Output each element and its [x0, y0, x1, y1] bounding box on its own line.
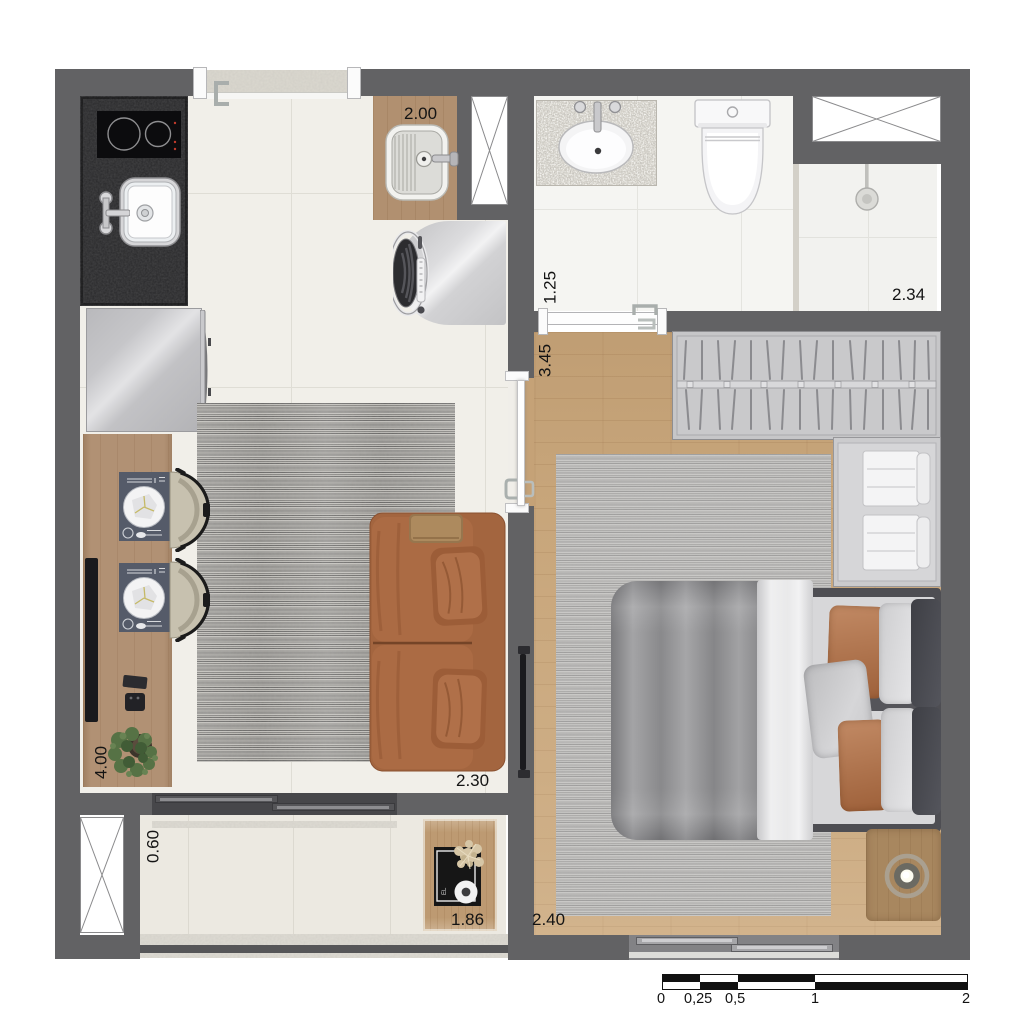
svg-text:EL: EL	[442, 887, 448, 895]
